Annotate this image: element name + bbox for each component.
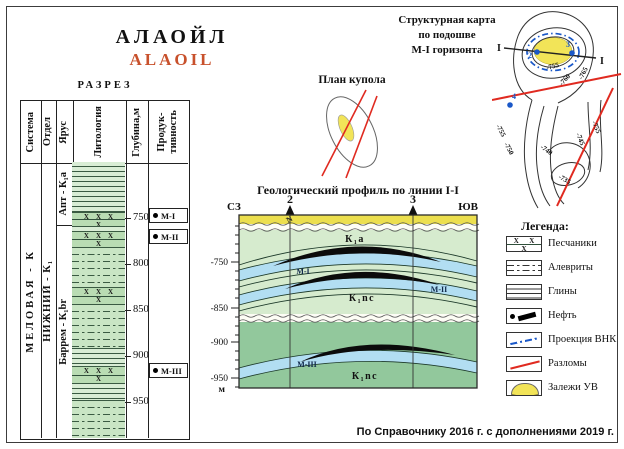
profile-depth-label: -900: [211, 338, 229, 348]
stage-aptian: Апт - К₁а: [58, 172, 70, 216]
productivity-marker-m2: М-II: [149, 229, 188, 244]
productivity-marker-m1: М-I: [149, 208, 188, 223]
direction-nw: СЗ: [227, 201, 241, 213]
oil-bar-icon: [518, 311, 537, 320]
profile-depth-label: -850: [211, 304, 229, 314]
legend-title: Легенда:: [500, 219, 590, 234]
well-3-head-icon: [409, 205, 418, 215]
legend-symbol-clay: [506, 284, 542, 300]
dome-plan-drawing: [300, 88, 404, 180]
legend-symbol-owc: [506, 332, 542, 348]
legend-label: Залежи УВ: [548, 382, 623, 393]
fault-line: [557, 88, 613, 206]
depth-tick: [125, 356, 131, 357]
depth-tick: [125, 402, 131, 403]
depth-label: 850: [133, 304, 149, 315]
section-label: РАЗРЕЗ: [50, 80, 160, 91]
field-title-en: ALAOIL: [60, 50, 284, 70]
legend-label: Проекция ВНК: [548, 334, 623, 345]
hc-deposit-icon: [511, 383, 539, 396]
legend-label: Нефть: [548, 310, 623, 321]
unit-label-k1nc-lower: К₁nc: [352, 371, 378, 382]
col-header-productivity: Продук- тивность: [156, 110, 180, 154]
depth-label: 750: [133, 212, 149, 223]
structural-map-drawing: I I 2 3 4 -755 -760 -765 -755 -750 -740 …: [492, 8, 622, 212]
marker-label: М-I: [161, 211, 175, 221]
oil-dot-icon: [510, 314, 515, 319]
profile-drawing: 2 3 -750 -850 -900 -950 м СЗ ЮВ N К₁а: [197, 195, 480, 395]
horizon-label-m1: М-I: [296, 267, 309, 276]
oil-dot-icon: [153, 213, 158, 218]
lith-band-clay: [72, 383, 125, 400]
legend-symbol-deposit: [506, 380, 542, 396]
well-4-label: 4: [512, 92, 516, 101]
lith-band-clay: [72, 348, 125, 366]
lith-band-sandstone-m3: [72, 366, 125, 383]
direction-se: ЮВ: [458, 201, 478, 213]
legend-label: Разломы: [548, 358, 623, 369]
lith-band-silt: [72, 400, 125, 438]
depth-label: 800: [133, 258, 149, 269]
division-value: НИЖНИЙ - К₁: [42, 260, 54, 342]
well-2-dot: [534, 49, 540, 55]
owc-dashdot-icon: [510, 337, 540, 345]
legend-label: Глины: [548, 286, 623, 297]
profile-depth-label: -750: [211, 258, 229, 268]
unit-label-k1nc-upper: К₁nc: [349, 293, 375, 304]
dome-plan-title: План купола: [294, 74, 410, 86]
lith-band-sandstone: [72, 287, 125, 304]
marker-label: М-II: [161, 232, 178, 242]
legend-label: Песчаники: [548, 238, 623, 249]
depth-tick: [125, 310, 131, 311]
system-value: МЕЛОВАЯ - К: [25, 249, 37, 353]
contour-label: -750: [502, 141, 515, 157]
well-4-dot: [507, 102, 513, 108]
lith-band-silt: [72, 247, 125, 287]
structural-map-title: Структурная карта по подошве М-I горизон…: [386, 13, 508, 58]
productivity-marker-m3: М-III: [149, 363, 188, 378]
well-3-dot: [569, 50, 575, 56]
profile-depth-label: -950: [211, 374, 229, 384]
profile-depth-unit: м: [219, 385, 226, 395]
field-title-ru: АЛАОЙЛ: [60, 26, 284, 49]
alaoil-figure: АЛАОЙЛ ALAOIL РАЗРЕЗ Система Отдел Ярус …: [0, 0, 624, 449]
horizon-label-m2: М-II: [431, 285, 447, 294]
stage-barremian: Баррем - К₁br: [58, 299, 70, 365]
source-note: По Справочнику 2016 г. с дополнениями 20…: [357, 426, 614, 438]
well-2-label: 2: [528, 51, 532, 60]
depth-tick: [125, 218, 131, 219]
depth-label: 900: [133, 350, 149, 361]
contour-label: -740: [539, 143, 555, 157]
line-label-I: I: [497, 43, 501, 54]
depth-label: 950: [133, 396, 149, 407]
contour-label: -755: [494, 123, 507, 139]
horizon-label-m3: М-III: [297, 360, 317, 369]
oil-dot-icon: [153, 234, 158, 239]
col-header-stage: Ярус: [58, 121, 70, 144]
marker-label: М-III: [161, 366, 182, 376]
line-label-I: I: [600, 56, 604, 67]
depth-tick: [125, 264, 131, 265]
lith-band-sandstone-m2: [72, 231, 125, 247]
well-3-number: 3: [410, 195, 416, 206]
fault-line-icon: [510, 360, 540, 369]
well-2-head-icon: [286, 205, 295, 215]
legend-symbol-oil: [506, 308, 542, 324]
dome-fault-1: [322, 90, 366, 176]
well-2-number: 2: [287, 195, 293, 206]
col-header-lithology: Литология: [93, 106, 105, 158]
col-header-division: Отдел: [42, 117, 54, 146]
lith-band-silt: [72, 304, 125, 348]
legend-symbol-silt: [506, 260, 542, 276]
well-3-label: 3: [566, 40, 570, 49]
col-header-depth: Глубина,м: [131, 108, 143, 157]
legend-symbol-sandstone: [506, 236, 542, 252]
legend-symbol-fault: [506, 356, 542, 372]
lith-band-sandstone-m1: [72, 212, 125, 226]
oil-dot-icon: [153, 368, 158, 373]
lith-band-clay: [72, 162, 125, 212]
col-header-system: Система: [25, 112, 37, 152]
legend-label: Алевриты: [548, 262, 623, 273]
contour-lower: [550, 106, 564, 204]
unit-label-k1a: К₁а: [345, 234, 365, 245]
